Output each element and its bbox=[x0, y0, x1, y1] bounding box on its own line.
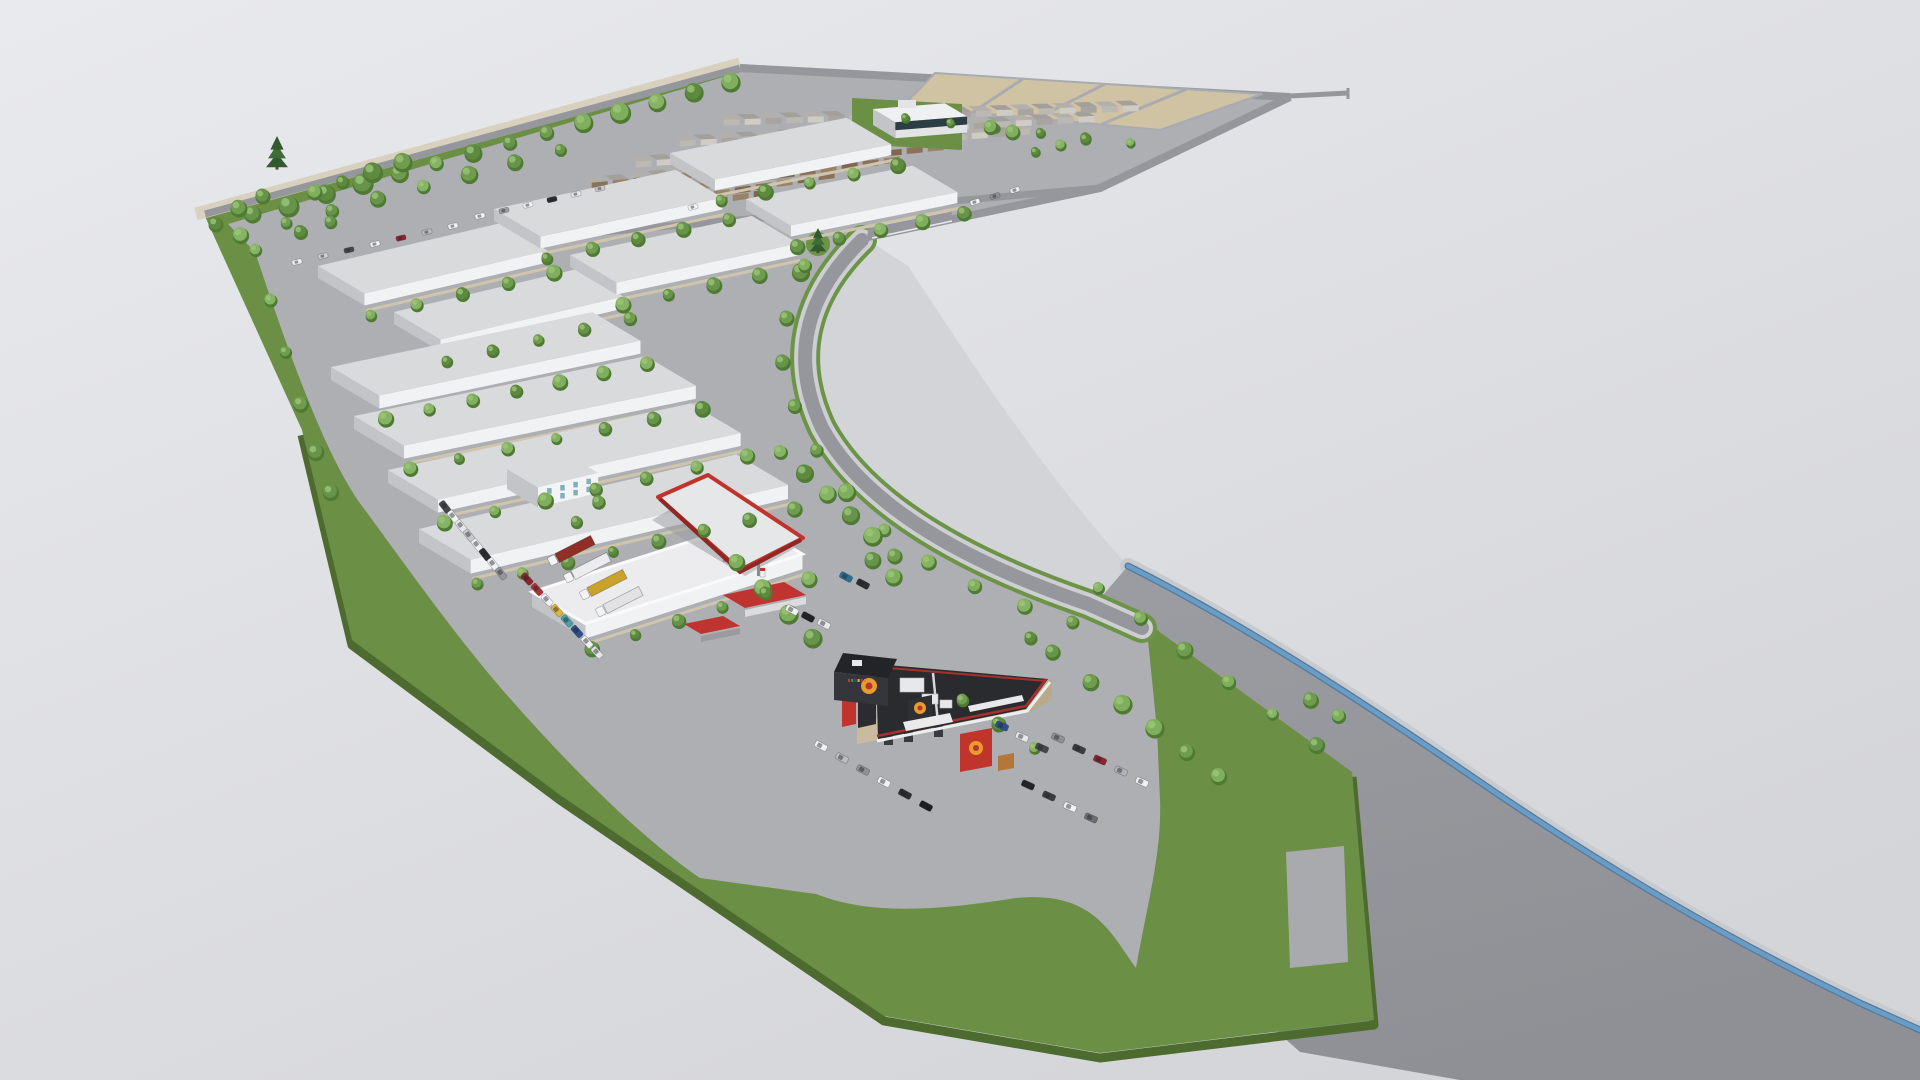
tree-highlight bbox=[327, 206, 332, 211]
tree-highlight bbox=[503, 443, 508, 448]
tree-highlight bbox=[281, 198, 289, 206]
house-front bbox=[766, 118, 782, 124]
tree-highlight bbox=[692, 462, 697, 467]
tree-highlight bbox=[539, 494, 546, 501]
tree-highlight bbox=[651, 96, 658, 103]
tree-highlight bbox=[754, 269, 760, 275]
tree-highlight bbox=[718, 602, 723, 607]
tree-highlight bbox=[803, 573, 809, 579]
tree-highlight bbox=[653, 535, 659, 541]
house-front bbox=[1060, 107, 1076, 113]
tree-highlight bbox=[1213, 770, 1220, 777]
office-window bbox=[586, 479, 591, 485]
tree-highlight bbox=[742, 450, 748, 456]
tree-highlight bbox=[257, 190, 263, 196]
tree-highlight bbox=[760, 186, 766, 192]
tree-highlight bbox=[781, 312, 787, 318]
tree-highlight bbox=[1268, 710, 1273, 715]
house-front bbox=[724, 119, 740, 125]
tree-highlight bbox=[418, 181, 424, 187]
tree-highlight bbox=[805, 179, 810, 184]
tree-highlight bbox=[1223, 677, 1229, 683]
tree-highlight bbox=[543, 254, 548, 259]
tree-highlight bbox=[251, 245, 256, 250]
tree-highlight bbox=[1026, 633, 1031, 638]
tree-highlight bbox=[310, 446, 317, 453]
sign-letter bbox=[858, 679, 860, 682]
office-window bbox=[573, 490, 578, 496]
tree-highlight bbox=[405, 463, 411, 469]
tree-highlight bbox=[372, 192, 378, 198]
tree-highlight bbox=[1032, 148, 1036, 152]
house-front bbox=[1018, 109, 1034, 115]
tree-highlight bbox=[554, 376, 560, 382]
tree-highlight bbox=[887, 570, 894, 577]
house-front bbox=[1079, 116, 1095, 123]
house-front bbox=[1102, 106, 1118, 112]
tree-highlight bbox=[875, 224, 881, 230]
tree-highlight bbox=[674, 615, 680, 621]
tree-highlight bbox=[806, 631, 814, 639]
burger-logo-center bbox=[973, 745, 979, 751]
tree-highlight bbox=[577, 115, 585, 123]
house-front bbox=[1081, 107, 1097, 113]
house-front bbox=[745, 118, 761, 124]
tree-highlight bbox=[534, 336, 539, 341]
house-front bbox=[1058, 117, 1074, 124]
tree-highlight bbox=[777, 356, 783, 362]
tree-highlight bbox=[455, 455, 459, 459]
tree-highlight bbox=[457, 289, 463, 295]
tree-highlight bbox=[958, 695, 963, 700]
house-front bbox=[1123, 105, 1139, 111]
tree-highlight bbox=[969, 581, 975, 587]
house-front bbox=[997, 110, 1013, 116]
tree-highlight bbox=[812, 445, 817, 450]
tree-highlight bbox=[552, 435, 556, 439]
rooftop-unit bbox=[900, 678, 924, 692]
perimeter-road bbox=[1290, 93, 1348, 96]
tree-highlight bbox=[724, 214, 729, 219]
tree-highlight bbox=[1135, 613, 1141, 619]
tree-highlight bbox=[367, 311, 372, 316]
tree-highlight bbox=[425, 405, 430, 410]
tree-highlight bbox=[1333, 711, 1339, 717]
tree-highlight bbox=[798, 466, 805, 473]
community-rooftop-box bbox=[898, 100, 916, 108]
tower-rooftop-unit bbox=[852, 660, 862, 666]
tree-highlight bbox=[281, 347, 286, 352]
house-front bbox=[680, 140, 696, 147]
tree-highlight bbox=[587, 243, 593, 249]
tree-highlight bbox=[834, 233, 839, 238]
tree-highlight bbox=[821, 487, 828, 494]
tree-highlight bbox=[295, 398, 301, 404]
tree-highlight bbox=[338, 177, 343, 182]
tree-highlight bbox=[708, 279, 714, 285]
tree-highlight bbox=[355, 176, 363, 184]
tree-highlight bbox=[512, 386, 517, 391]
tree-highlight bbox=[1181, 746, 1187, 752]
sign-letter bbox=[851, 679, 853, 682]
parking-notch bbox=[1286, 846, 1348, 968]
rooftop-unit bbox=[940, 700, 952, 708]
tree-highlight bbox=[266, 295, 271, 300]
tree-highlight bbox=[295, 227, 301, 233]
tree-highlight bbox=[380, 412, 386, 418]
tree-highlight bbox=[625, 314, 630, 319]
tree-highlight bbox=[664, 290, 669, 295]
tree-highlight bbox=[789, 503, 795, 509]
tree-highlight bbox=[579, 324, 584, 329]
tree-highlight bbox=[792, 241, 798, 247]
tree-highlight bbox=[789, 401, 795, 407]
tree-highlight bbox=[1148, 721, 1156, 729]
office-window bbox=[560, 493, 565, 499]
tree-highlight bbox=[1311, 739, 1318, 746]
sign-letter bbox=[854, 679, 856, 682]
tree-highlight bbox=[1178, 644, 1185, 651]
tree-highlight bbox=[548, 266, 555, 273]
tree-highlight bbox=[232, 202, 239, 209]
tree-highlight bbox=[699, 525, 704, 530]
site-plan-render bbox=[0, 0, 1920, 1080]
tree-highlight bbox=[541, 127, 547, 133]
house-front bbox=[1037, 118, 1053, 125]
tree-highlight bbox=[309, 186, 315, 192]
tree-highlight bbox=[617, 298, 623, 304]
tree-highlight bbox=[503, 278, 508, 283]
sign-letter bbox=[861, 679, 863, 682]
tree-highlight bbox=[396, 155, 404, 163]
house-front bbox=[636, 161, 652, 168]
office-window bbox=[560, 485, 565, 491]
tree-highlight bbox=[724, 75, 732, 83]
tree-highlight bbox=[959, 208, 965, 214]
render-canvas bbox=[0, 0, 1920, 1080]
tree-highlight bbox=[866, 529, 874, 537]
tree-highlight bbox=[282, 218, 287, 223]
tree-highlight bbox=[210, 218, 216, 224]
tree-highlight bbox=[572, 517, 577, 522]
tree-highlight bbox=[1030, 744, 1035, 749]
tree-highlight bbox=[985, 122, 991, 128]
burger-logo-center bbox=[918, 706, 923, 711]
tree-highlight bbox=[467, 146, 474, 153]
tree-highlight bbox=[697, 403, 703, 409]
tree-highlight bbox=[431, 158, 437, 164]
house-front bbox=[1016, 120, 1032, 127]
fuel-pump-top bbox=[760, 568, 765, 571]
tree-highlight bbox=[609, 548, 613, 552]
tree-highlight bbox=[1127, 140, 1131, 144]
tree-highlight bbox=[642, 358, 648, 364]
tree-highlight bbox=[613, 105, 621, 113]
tree-highlight bbox=[325, 486, 331, 492]
tree-highlight bbox=[591, 484, 596, 489]
tree-highlight bbox=[648, 413, 654, 419]
tree-highlight bbox=[598, 367, 604, 373]
tree-highlight bbox=[1081, 135, 1086, 140]
tree-highlight bbox=[731, 556, 738, 563]
tree-highlight bbox=[849, 169, 854, 174]
tree-highlight bbox=[761, 588, 766, 593]
tree-highlight bbox=[491, 507, 496, 512]
tree-highlight bbox=[518, 569, 523, 574]
office-window bbox=[547, 488, 552, 494]
house-front bbox=[1039, 108, 1055, 114]
tree-highlight bbox=[1056, 141, 1060, 145]
burger-logo-center bbox=[866, 683, 873, 690]
tree-highlight bbox=[641, 473, 646, 478]
tree-highlight bbox=[717, 196, 722, 201]
house-front bbox=[808, 116, 824, 122]
tree-highlight bbox=[1019, 600, 1025, 606]
tree-highlight bbox=[509, 156, 515, 162]
tree-highlight bbox=[1068, 617, 1073, 622]
tree-highlight bbox=[365, 164, 373, 172]
restaurant-door bbox=[998, 753, 1014, 771]
tree-highlight bbox=[468, 395, 473, 400]
tree-highlight bbox=[844, 508, 851, 515]
tree-highlight bbox=[923, 556, 929, 562]
tree-highlight bbox=[1116, 697, 1124, 705]
tree-highlight bbox=[631, 631, 635, 635]
sign-letter bbox=[848, 679, 850, 682]
tree-highlight bbox=[556, 146, 561, 151]
tree-highlight bbox=[840, 485, 847, 492]
tree-highlight bbox=[488, 346, 493, 351]
tree-highlight bbox=[889, 550, 895, 556]
tree-highlight bbox=[1047, 646, 1053, 652]
tree-highlight bbox=[880, 525, 885, 530]
sign-letter bbox=[864, 679, 866, 682]
tree-highlight bbox=[1037, 129, 1041, 133]
tree-highlight bbox=[505, 138, 511, 144]
tree-highlight bbox=[633, 234, 639, 240]
tree-highlight bbox=[1085, 676, 1092, 683]
tree-highlight bbox=[412, 300, 417, 305]
tree-highlight bbox=[902, 115, 906, 119]
tree-highlight bbox=[439, 517, 445, 523]
tree-highlight bbox=[744, 514, 750, 520]
tree-highlight bbox=[775, 447, 781, 453]
tree-highlight bbox=[473, 579, 478, 584]
tree-highlight bbox=[326, 217, 331, 222]
tree-highlight bbox=[947, 120, 951, 124]
tree-highlight bbox=[1007, 126, 1013, 132]
tree-highlight bbox=[1094, 584, 1099, 589]
tree-highlight bbox=[678, 223, 684, 229]
tree-highlight bbox=[800, 260, 805, 265]
tree-highlight bbox=[600, 424, 605, 429]
tree-highlight bbox=[687, 85, 695, 93]
tree-highlight bbox=[892, 159, 898, 165]
terrain-layer bbox=[0, 0, 1920, 1080]
house-front bbox=[976, 110, 992, 116]
house-front bbox=[787, 117, 803, 123]
tree-highlight bbox=[235, 229, 242, 236]
tree-highlight bbox=[917, 216, 923, 222]
tree-highlight bbox=[1305, 694, 1311, 700]
tree-highlight bbox=[463, 168, 470, 175]
tree-highlight bbox=[594, 497, 599, 502]
tree-highlight bbox=[867, 554, 874, 561]
office-window bbox=[573, 482, 578, 488]
tree-highlight bbox=[443, 357, 448, 362]
house-front bbox=[972, 132, 988, 139]
